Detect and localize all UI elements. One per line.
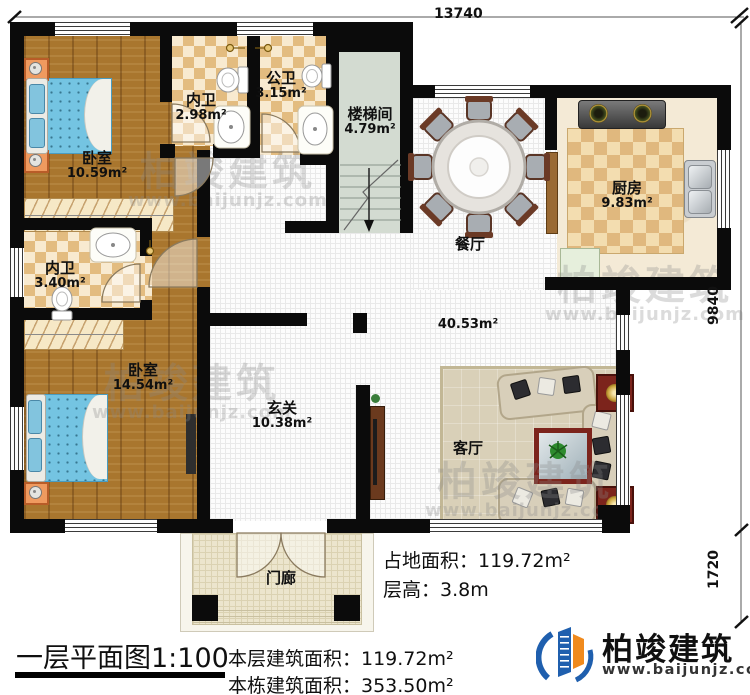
stairwell-floor [334,50,402,233]
cushion [562,375,581,394]
kitchen-sink [684,160,716,218]
room-label-public-bath: 公卫 3.15m² [255,70,306,102]
window [65,519,157,533]
dimension-top: 13740 [434,6,483,22]
fridge [560,248,600,278]
room-label-dining: 餐厅 [455,236,485,253]
wall [210,313,307,326]
room-label-ensuite-1: 内卫 2.98m² [175,92,226,124]
stove [578,100,666,129]
room-label-bedroom-2: 卧室 14.54m² [113,362,173,394]
lamp-icon [29,62,42,75]
wall [160,35,172,102]
sink-basin [688,165,712,189]
porch-pillar [334,595,360,621]
window [616,315,630,350]
window [237,22,313,36]
cushion [540,487,560,507]
brand-url: www.baijunjz.com [602,662,750,678]
room-label-ensuite-2: 内卫 3.40m² [34,260,85,292]
cushion [537,377,556,396]
room-label-bedroom-1: 卧室 10.59m² [67,150,127,182]
lamp-icon [29,486,42,499]
building-area-text: 本栋建筑面积：353.50m² [228,671,454,695]
floor-height-text: 层高：3.8m [383,575,489,602]
wall [160,144,175,158]
room-label-porch: 门廊 [266,570,296,587]
cushion [565,488,585,508]
window [717,150,731,228]
coffee-table [534,428,592,484]
wall [545,98,557,150]
cushion [591,460,611,480]
kitchen-door [546,152,558,234]
wall [10,218,152,230]
dimension-right-porch: 1720 [706,550,722,589]
wall [356,385,370,533]
wall [326,35,339,233]
sink-basin [688,190,712,214]
window [430,519,602,533]
cushion [592,436,612,456]
brand-logo-icon [536,620,598,684]
nightstand [24,482,49,505]
tv-screen [373,419,377,485]
burner-icon [633,104,652,123]
window [55,22,130,36]
window [10,407,24,470]
window [616,395,630,505]
living-dining-area-label: 40.53m² [438,318,498,333]
dining-floor [413,98,547,290]
floor-plan-page: 柏竣建筑 www.baijunjz.com 柏竣建筑 www.baijunjz.… [0,0,750,695]
wall [10,308,152,320]
window [435,85,530,98]
lamp-icon [29,154,42,167]
wall [326,36,402,52]
title-underline [15,672,225,678]
room-label-stairwell: 楼梯间 4.79m² [344,106,395,138]
plan-title: 一层平面图1:100 [16,636,229,675]
dimension-right-main: 9840 [706,286,722,325]
wall [353,313,367,333]
porch-pillar [192,595,218,621]
window [10,248,24,297]
wall [197,287,210,520]
floor-area-text: 本层建筑面积：119.72m² [228,644,454,671]
wall [197,150,210,237]
plant-icon [371,394,380,403]
wall [140,230,152,256]
pillow [29,84,45,114]
wall [598,505,630,533]
wardrobe-bedroom-2 [24,318,124,350]
tv-cabinet [370,406,385,500]
wall [545,277,731,290]
room-label-kitchen: 厨房 9.83m² [601,180,652,212]
tv-bedroom-2 [186,414,196,474]
pillow [29,118,45,148]
burner-icon [589,104,608,123]
site-area-text: 占地面积：119.72m² [383,546,571,573]
room-label-living: 客厅 [453,440,483,457]
pillow [28,400,42,434]
room-label-foyer: 玄关 10.38m² [252,400,312,432]
wall [400,22,413,233]
pillow [28,438,42,472]
wall [285,221,339,233]
wall [213,144,250,158]
